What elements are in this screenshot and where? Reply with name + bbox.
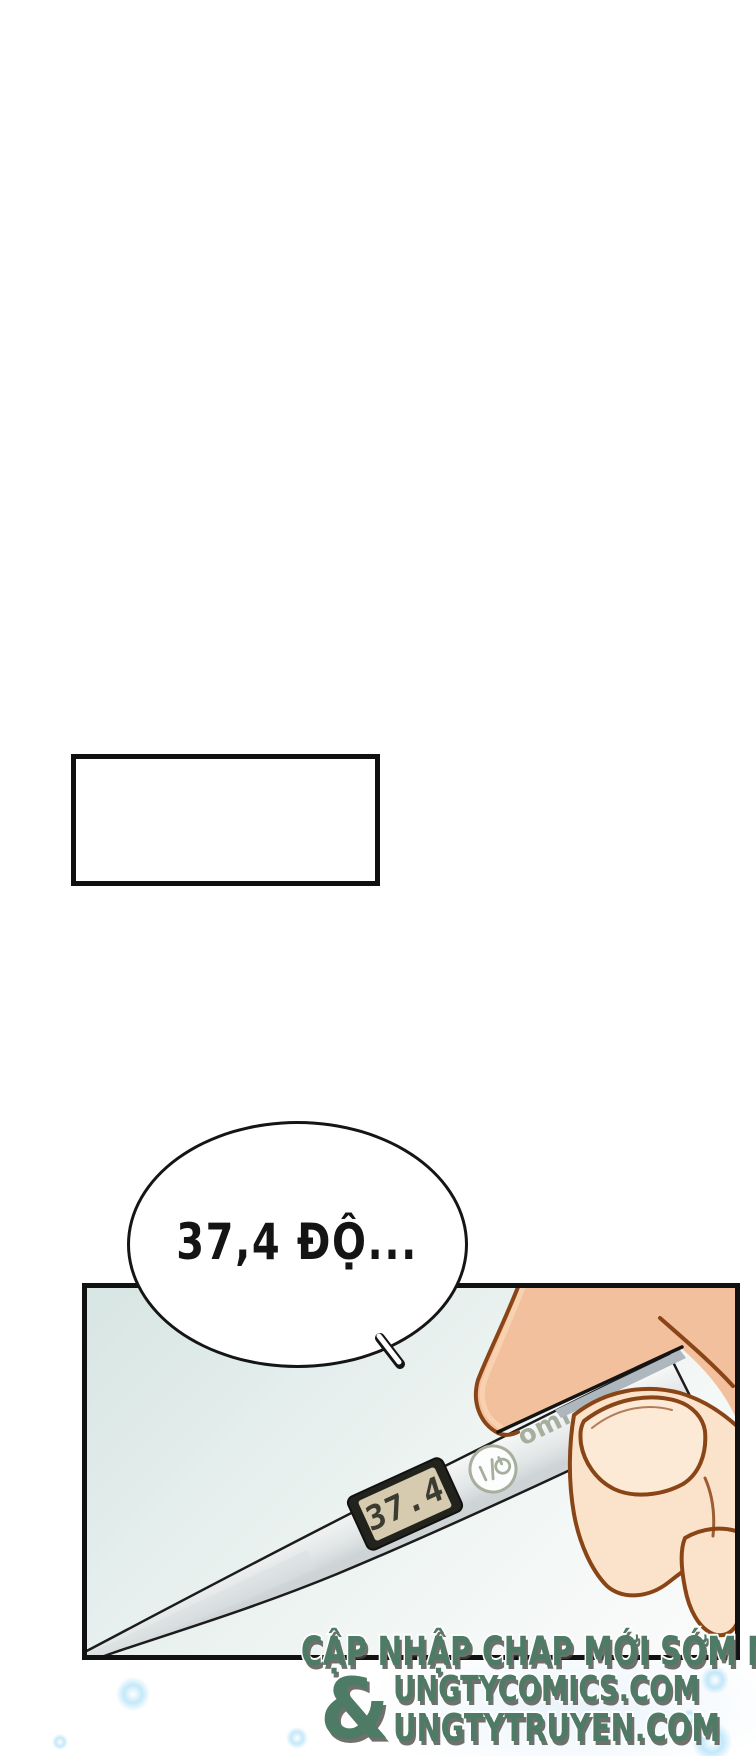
speech-bubble-text: 37,4 ĐỘ... — [177, 1213, 419, 1277]
watermark-site-1: UNGTYCOMICS.COM — [393, 1672, 720, 1708]
caption-box — [71, 754, 380, 886]
speech-bubble-tail — [360, 1328, 424, 1380]
fingernail — [580, 1397, 705, 1494]
watermark-ampersand: & — [320, 1675, 390, 1744]
watermark: CẬP NHẬP CHAP MỚI SỚM NHẤT TẠI & UNGTYCO… — [0, 1628, 756, 1756]
watermark-sites-row: & UNGTYCOMICS.COM UNGTYTRUYEN.COM — [318, 1672, 756, 1747]
comic-page: 37.4 omr — [0, 0, 756, 1756]
second-finger-illustration — [682, 1529, 735, 1636]
watermark-site-2: UNGTYTRUYEN.COM — [393, 1709, 720, 1747]
